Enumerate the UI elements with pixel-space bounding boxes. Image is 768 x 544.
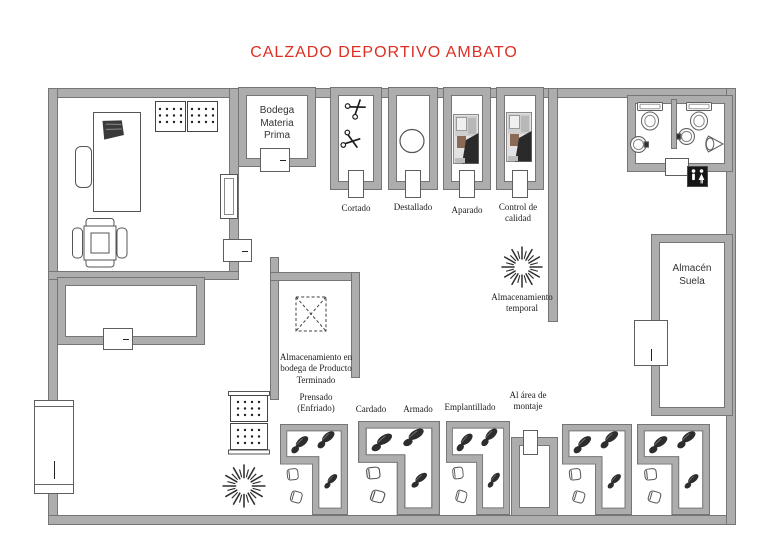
page-title: CALZADO DEPORTIVO AMBATO [0,44,768,62]
workcell-right-2 [637,424,710,515]
label-prensado: Prensado (Enfriado) [287,392,345,415]
restroom-sign-icon [687,166,708,187]
door-control-calidad [512,170,528,198]
door-aparado [459,170,475,198]
label-almacenamiento-temporal: Almacenamiento temporal [477,292,567,315]
door-destallado [405,170,421,198]
scissors-icon [340,98,370,126]
window-office [220,174,238,219]
sink-icon [630,135,649,154]
workcell-prensado [280,424,348,515]
label-cortado: Cortado [330,203,382,214]
chair-icon [75,146,92,188]
workcell-right-1 [562,424,632,515]
shelf-rack-icon [228,391,270,455]
wall-outer-bottom [48,515,736,525]
laptop-icon [97,116,131,150]
wall-center-divider [548,88,558,322]
label-almacenamiento-bodega: Almacenamiento en bodega de Producto Ter… [272,352,360,386]
toilet-icon [637,102,663,131]
wall-enclosure-top [270,272,360,281]
label-cardado: Cardado [346,404,396,415]
sewing-machine-photo [453,114,479,164]
door-main-entrance [34,400,74,494]
door-bathroom [665,158,689,176]
starburst-icon [221,463,267,509]
label-almacen-suela: Almacén Suela [656,263,728,288]
door-bodega [260,148,290,172]
sewing-machine-photo [506,112,532,162]
workcell-emplantillado [446,421,510,515]
urinal-icon [702,134,724,154]
meeting-table-icon [72,218,128,268]
door-montaje-passage [523,430,538,455]
label-aparado: Aparado [442,205,492,216]
label-control-calidad: Control de calidad [490,202,546,225]
label-emplantillado: Emplantillado [441,402,499,413]
label-armado: Armado [396,404,440,415]
door-office [223,239,252,262]
sink-icon [676,127,695,146]
workcell-cardado-armado [358,421,440,515]
door-cortado [348,170,364,198]
leather-piece-icon [398,128,426,154]
cabinet-shelf-icon [154,99,220,135]
label-destallado: Destallado [382,202,444,213]
starburst-icon [500,245,544,289]
floor-plan: CALZADO DEPORTIVO AMBATO [0,0,768,544]
label-bodega: Bodega Materia Prima [240,105,314,143]
scissors-icon [338,126,368,154]
crate-icon [295,296,327,332]
door-middle-left-room [103,328,133,350]
label-al-area-montaje: Al área de montaje [502,390,554,413]
door-almacen-suela [634,320,668,366]
